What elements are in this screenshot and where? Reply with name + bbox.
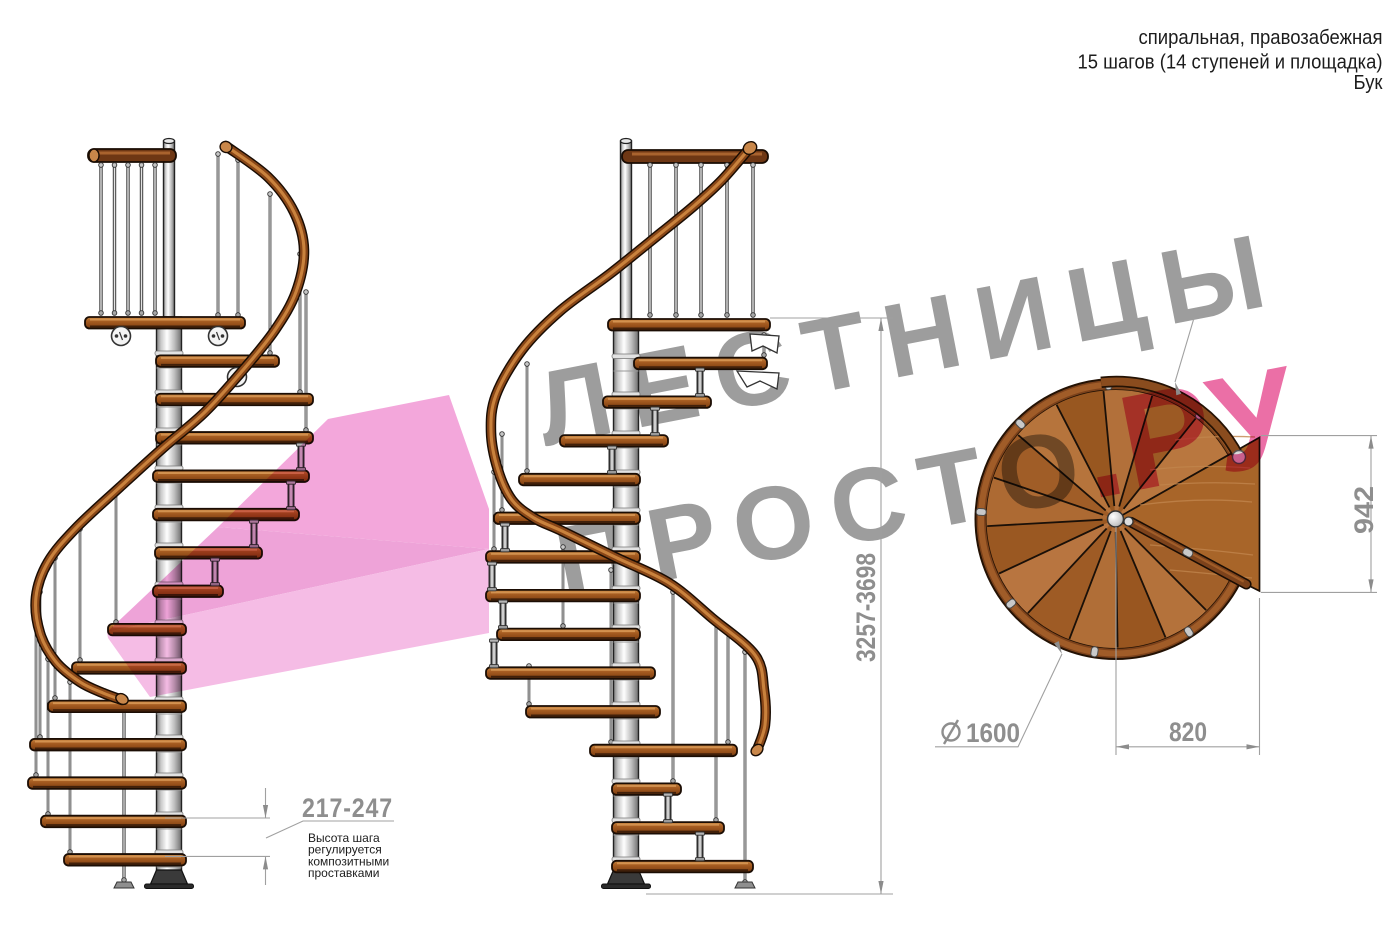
svg-text:.РУ: .РУ xyxy=(1069,337,1311,528)
svg-text:Бук: Бук xyxy=(1354,71,1384,94)
svg-text:15 шагов (14 ступеней и площад: 15 шагов (14 ступеней и площадка) xyxy=(1078,51,1383,74)
svg-text:217-247: 217-247 xyxy=(302,793,393,823)
svg-text:спиральная, правозабежная: спиральная, правозабежная xyxy=(1139,26,1383,49)
svg-text:3257-3698: 3257-3698 xyxy=(851,553,881,662)
svg-text:820: 820 xyxy=(1169,717,1207,747)
svg-text:проставками: проставками xyxy=(308,866,379,880)
svg-text:942: 942 xyxy=(1349,486,1379,534)
svg-text:1600: 1600 xyxy=(966,718,1020,748)
